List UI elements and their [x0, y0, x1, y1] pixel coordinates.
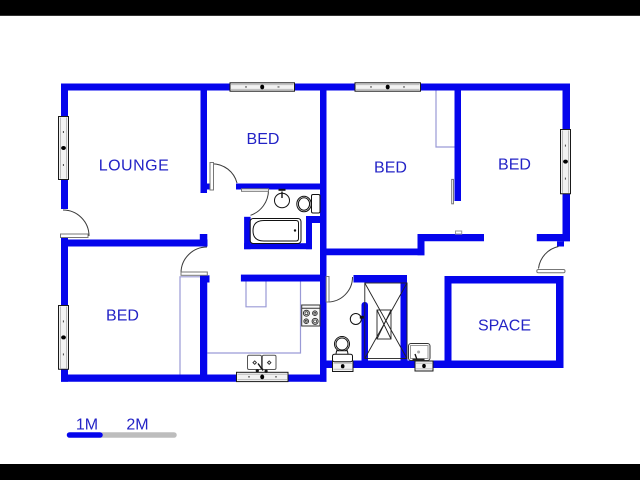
svg-text:SPACE: SPACE [478, 318, 531, 335]
svg-text:BED: BED [374, 160, 407, 177]
svg-text:BED: BED [247, 131, 280, 148]
svg-text:BED: BED [498, 157, 531, 174]
svg-text:LOUNGE: LOUNGE [99, 158, 170, 175]
svg-text:2M: 2M [126, 417, 148, 434]
svg-text:BED: BED [106, 308, 139, 325]
svg-text:1M: 1M [76, 417, 98, 434]
